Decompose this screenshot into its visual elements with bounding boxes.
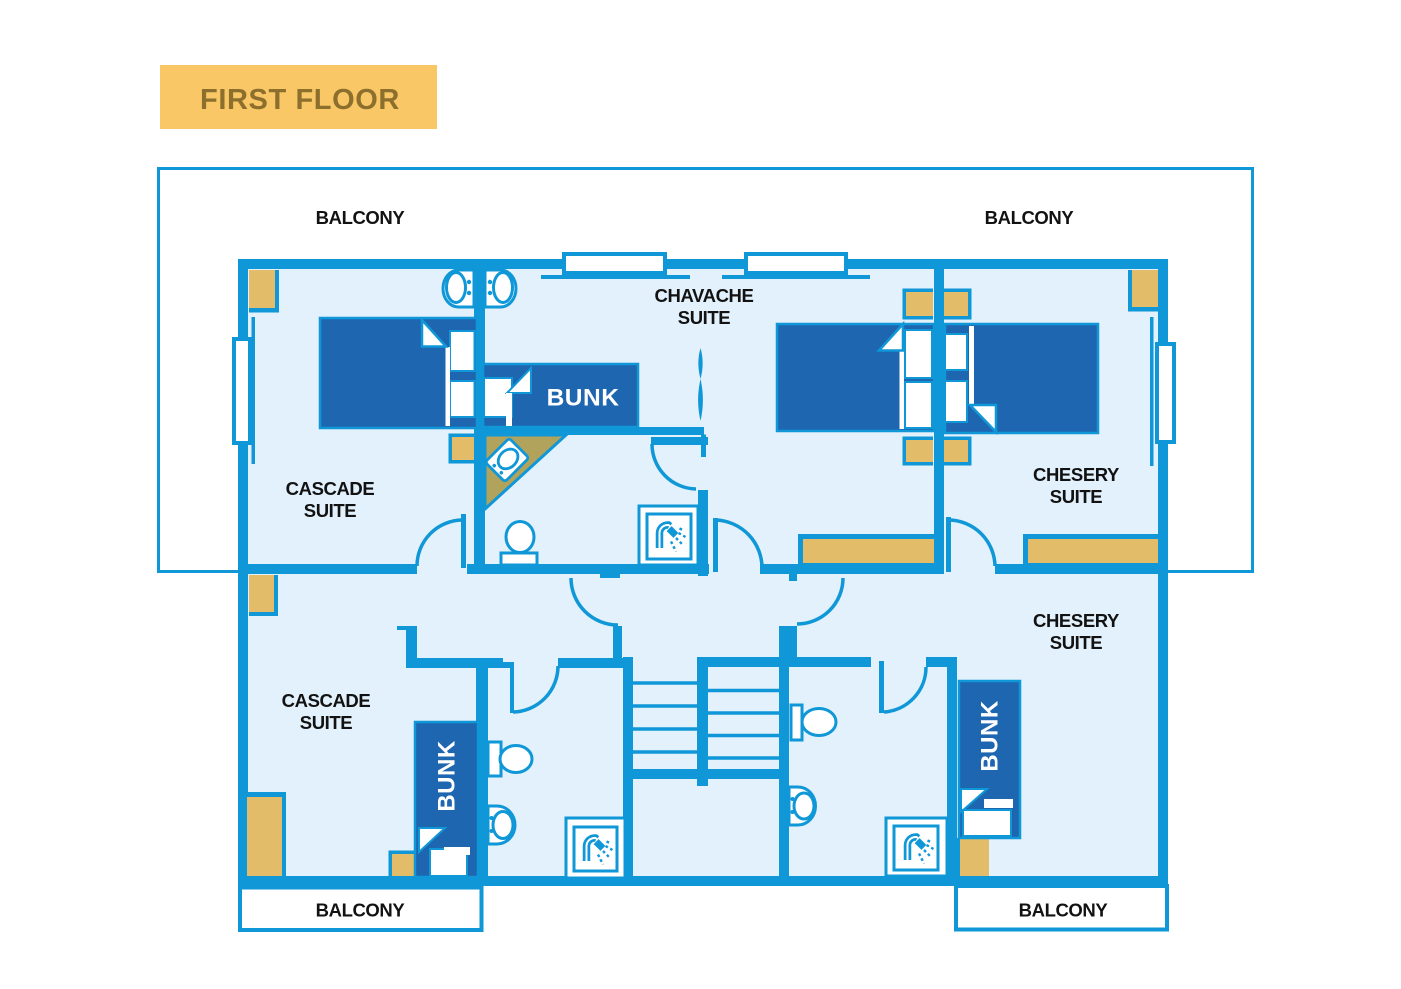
svg-text:SUITE: SUITE: [1050, 632, 1103, 653]
svg-text:SUITE: SUITE: [1050, 486, 1103, 507]
svg-text:BALCONY: BALCONY: [316, 207, 406, 228]
svg-text:BALCONY: BALCONY: [316, 900, 406, 921]
svg-text:SUITE: SUITE: [304, 500, 357, 521]
svg-text:CHESERY: CHESERY: [1033, 610, 1120, 631]
svg-text:BUNK: BUNK: [547, 385, 620, 412]
svg-text:BALCONY: BALCONY: [985, 207, 1075, 228]
svg-text:BUNK: BUNK: [977, 700, 1004, 771]
svg-text:BUNK: BUNK: [434, 740, 461, 811]
svg-text:CHESERY: CHESERY: [1033, 464, 1120, 485]
svg-text:FIRST FLOOR: FIRST FLOOR: [200, 84, 400, 116]
svg-text:CASCADE: CASCADE: [286, 478, 375, 499]
svg-text:BALCONY: BALCONY: [1019, 900, 1109, 921]
svg-text:CASCADE: CASCADE: [282, 690, 371, 711]
svg-text:CHAVACHE: CHAVACHE: [655, 285, 754, 306]
svg-text:SUITE: SUITE: [678, 307, 731, 328]
svg-text:SUITE: SUITE: [300, 712, 353, 733]
